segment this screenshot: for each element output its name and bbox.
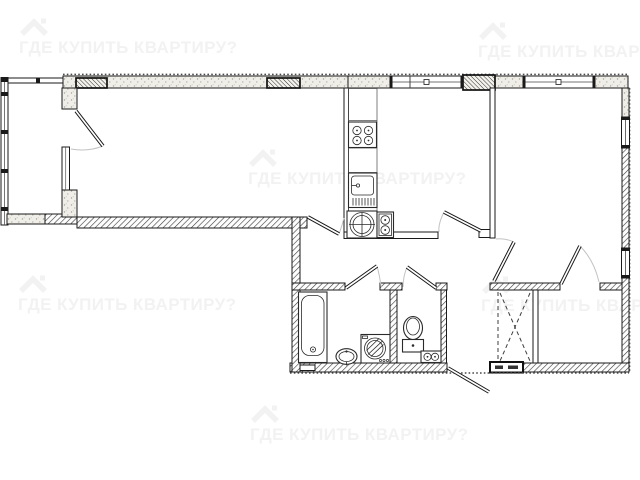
lintel-block	[76, 78, 107, 88]
glazing-divider	[1, 77, 9, 82]
kitchen-fixtures	[347, 89, 394, 239]
vent-shaft-mark	[495, 366, 503, 370]
north-wall	[595, 76, 628, 88]
kitchen-sink-icon	[349, 173, 378, 208]
south-wall-niche	[299, 365, 315, 371]
apartment-floor-plan	[0, 0, 640, 480]
balcony-pier	[62, 88, 77, 109]
bedroom-south-wall	[490, 283, 560, 290]
east-wall	[622, 148, 629, 248]
bathtub-icon	[299, 292, 328, 363]
vent-shaft-mark	[508, 366, 518, 370]
round-sink-icon	[347, 211, 377, 238]
wc-fixtures	[403, 317, 442, 363]
balcony-south-wall	[7, 214, 45, 224]
glazing-divider	[1, 130, 9, 134]
bedroom-west-wall	[490, 88, 495, 238]
bedroom-south-wall	[600, 283, 622, 290]
glazing-divider	[1, 169, 9, 173]
south-wall	[523, 363, 629, 372]
washing-machine-icon	[361, 335, 390, 364]
north-wall	[348, 76, 390, 88]
kitchen-window	[390, 76, 463, 88]
bathroom-fixtures	[299, 292, 391, 366]
bedroom-window	[523, 76, 595, 88]
water-meters-icon	[421, 351, 441, 363]
east-window-lower	[622, 248, 630, 278]
bathroom-wc-divider	[390, 290, 397, 363]
bathroom-north-wall	[380, 283, 402, 290]
glazing-divider	[36, 78, 40, 84]
closet-west-wall	[533, 290, 538, 363]
balcony-door-arc	[71, 146, 103, 150]
north-wall	[495, 76, 523, 88]
glazing-divider	[1, 207, 9, 211]
glazing-divider	[1, 92, 9, 96]
east-wall	[622, 278, 629, 372]
bathroom-north-wall	[292, 283, 345, 290]
stove-icon	[349, 122, 377, 148]
lintel-block	[267, 78, 300, 88]
east-window-upper	[622, 117, 630, 148]
vent-shaft-block	[490, 362, 523, 373]
balcony-pier	[62, 190, 77, 217]
wc-east-wall	[441, 290, 447, 363]
water-heater-icon	[377, 212, 394, 238]
living-room-south-wall	[77, 217, 307, 228]
floor-plan-page: ГДЕ КУПИТЬ КВАРТИРУ? ГДЕ КУПИТЬ КВАРТИРУ…	[0, 0, 640, 480]
east-wall	[622, 88, 629, 117]
balcony-north-glazing	[8, 78, 63, 83]
toilet-icon	[403, 317, 424, 353]
wardrobe-shaft	[498, 292, 530, 362]
wc-north-wall	[436, 283, 447, 290]
balcony	[1, 77, 104, 225]
